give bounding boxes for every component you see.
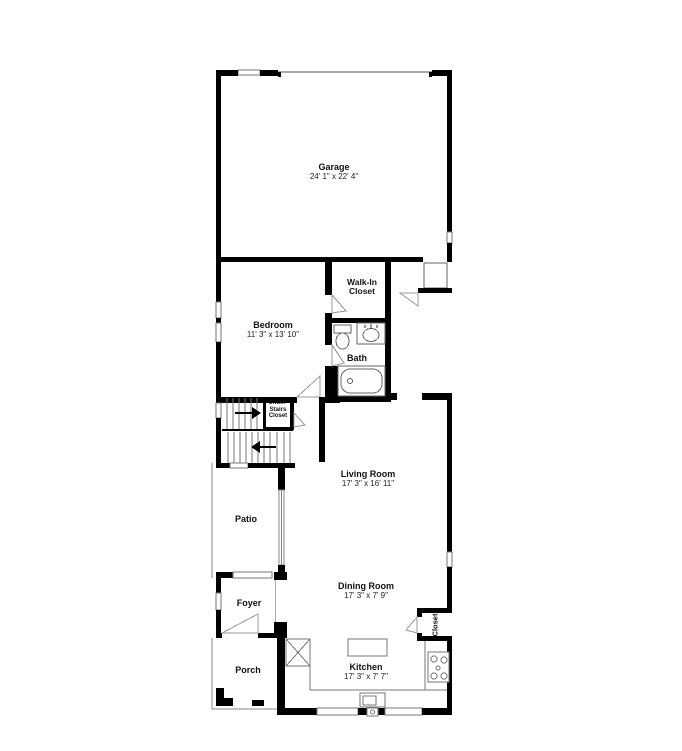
- stove-burner: [441, 673, 447, 679]
- wall-segment: [274, 572, 287, 580]
- stove-burner: [431, 673, 437, 679]
- wall-segment: [216, 633, 222, 638]
- wall-segment: [216, 578, 221, 593]
- porch-post: [216, 698, 233, 706]
- room-name: Closet: [347, 287, 377, 296]
- room-name: Living Room: [341, 469, 396, 479]
- wall-segment: [422, 708, 452, 715]
- window: [216, 403, 221, 418]
- kitchen-sink-bowl: [363, 696, 376, 705]
- window: [447, 232, 452, 243]
- wall-segment: [447, 400, 452, 552]
- living-room-label: Living Room 17' 3" x 16' 11": [341, 469, 396, 489]
- wall-segment: [417, 613, 422, 617]
- floor-plan: Garage 24' 1" x 22' 4" Bedroom 11' 3" x …: [0, 0, 682, 751]
- kitchen-label: Kitchen 17' 3" x 7' 7": [344, 662, 388, 682]
- wall-segment: [447, 70, 452, 232]
- living-dining-walls: [447, 400, 452, 608]
- room-name: Under-: [268, 400, 287, 407]
- wall-segment: [418, 288, 452, 293]
- wall-segment: [216, 257, 423, 262]
- room-name: Closet: [268, 413, 287, 420]
- room-name: Garage: [310, 162, 358, 172]
- wall-segment: [290, 398, 294, 430]
- wall-segment: [216, 418, 221, 468]
- door-swing: [297, 376, 320, 397]
- window: [385, 708, 422, 715]
- patio-label: Patio: [235, 514, 257, 524]
- bathroom-sink: [363, 329, 379, 342]
- window: [317, 708, 358, 715]
- dining-closet-walls: [406, 608, 452, 641]
- floor-plan-drawing: [0, 0, 682, 751]
- wall-segment: [325, 318, 390, 323]
- door-swing: [294, 413, 305, 427]
- wall-segment: [216, 70, 221, 262]
- wall-segment: [216, 572, 233, 578]
- wall-segment: [260, 70, 278, 76]
- window: [447, 552, 452, 567]
- room-name: Bath: [347, 353, 367, 363]
- foyer-label: Foyer: [237, 598, 262, 608]
- wall-segment: [216, 342, 221, 403]
- wall-segment: [216, 463, 230, 468]
- wall-segment: [325, 262, 332, 295]
- stove-burner: [441, 657, 447, 663]
- wall-segment: [417, 608, 452, 613]
- entry-hall: [390, 263, 452, 400]
- door-swing: [406, 617, 417, 633]
- wall-segment: [248, 463, 295, 468]
- door-tick: [278, 72, 281, 77]
- porch-post: [252, 700, 264, 706]
- room-name: Patio: [235, 514, 257, 524]
- wall-segment: [390, 393, 397, 400]
- wall-segment: [385, 262, 391, 402]
- room-name: Kitchen: [344, 662, 388, 672]
- toilet-tank: [334, 325, 351, 333]
- window: [238, 70, 260, 75]
- wall-segment: [258, 633, 277, 638]
- door-swing: [400, 293, 418, 306]
- wall-segment: [216, 262, 221, 302]
- wall-segment: [422, 393, 452, 400]
- bath-label: Bath: [347, 353, 367, 363]
- dining-room-label: Dining Room 17' 3" x 7' 9": [338, 581, 394, 601]
- wall-segment: [417, 636, 452, 641]
- wall-segment: [277, 635, 285, 708]
- wall-segment: [447, 243, 452, 262]
- wall-segment: [325, 313, 332, 345]
- window: [216, 593, 221, 610]
- window: [230, 463, 248, 468]
- room-dims: 11' 3" x 13' 10": [247, 330, 299, 340]
- wall-segment: [278, 468, 285, 490]
- wall-segment: [277, 708, 317, 715]
- room-name: Dining Room: [338, 581, 394, 591]
- door-swing: [332, 295, 346, 313]
- wall-segment: [447, 567, 452, 608]
- wall-segment: [263, 403, 266, 430]
- closet-label: Closet: [431, 614, 440, 637]
- door-tick: [429, 72, 432, 77]
- window: [216, 323, 221, 342]
- porch-label: Porch: [235, 665, 261, 675]
- bathtub-drain: [348, 379, 353, 384]
- room-dims: 17' 3" x 7' 7": [344, 672, 388, 682]
- wall-segment: [216, 318, 221, 323]
- room-dims: 17' 3" x 7' 9": [338, 591, 394, 601]
- room-dims: 24' 1" x 22' 4": [310, 172, 358, 182]
- bedroom-label: Bedroom 11' 3" x 13' 10": [247, 320, 299, 340]
- kitchen-faucet-knob: [371, 710, 375, 714]
- walkin-closet-label: Walk-In Closet: [347, 278, 377, 296]
- window: [233, 572, 272, 578]
- foyer-walls: [216, 578, 287, 638]
- wall-segment: [263, 427, 294, 430]
- garage-label: Garage 24' 1" x 22' 4": [310, 162, 358, 182]
- stove-burner: [431, 656, 437, 662]
- kitchen-island: [348, 639, 387, 656]
- room-dims: 17' 3" x 16' 11": [341, 479, 396, 489]
- window: [216, 302, 221, 318]
- toilet-bowl: [336, 333, 349, 349]
- front-door-swing: [222, 614, 258, 633]
- wall-segment: [417, 633, 422, 636]
- understairs-closet-label: Under- Stairs Closet: [268, 400, 287, 420]
- room-name: Bedroom: [247, 320, 299, 330]
- wall-segment: [319, 397, 325, 462]
- stove-burner: [436, 666, 440, 670]
- room-name: Porch: [235, 665, 261, 675]
- entry-steps: [424, 263, 447, 288]
- room-name: Foyer: [237, 598, 262, 608]
